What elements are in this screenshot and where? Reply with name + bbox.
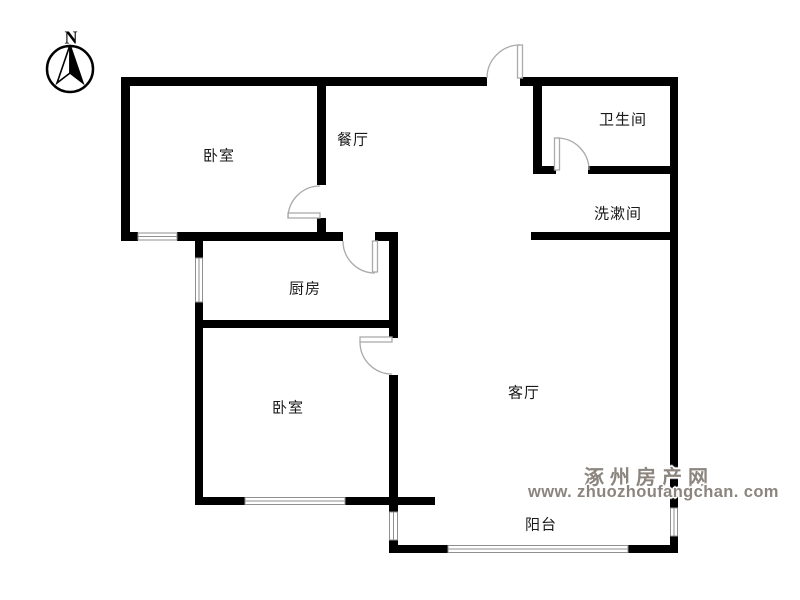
wall-center-lower: [389, 375, 398, 512]
compass-needle-west: [57, 45, 70, 83]
wall-bedroom-south-bottom-b: [345, 497, 435, 505]
room-label-dining: 餐厅: [337, 129, 369, 150]
door-arc-bathroom: [557, 138, 589, 170]
wall-divider-bedroom-dining-upper: [317, 77, 326, 185]
wall-bedroom-north-bottom-b: [177, 232, 343, 241]
wall-east: [670, 77, 678, 508]
wall-center-upper: [389, 232, 398, 338]
wall-bathroom-west: [533, 86, 542, 174]
door-bedroom-south: [360, 337, 392, 374]
wall-bedroom-north-bottom-a: [121, 232, 138, 241]
room-label-washroom: 洗漱间: [594, 203, 642, 224]
wall-bathroom-bottom-a: [533, 166, 556, 174]
door-bedroom-north: [288, 186, 320, 218]
room-label-bedroom-north: 卧室: [203, 145, 235, 166]
watermark-url: www. zhuozhoufangchan. com: [528, 483, 779, 502]
window-kitchen-west: [196, 258, 203, 302]
compass: [47, 45, 93, 92]
wall-top-west: [121, 77, 487, 86]
wall-balcony-bottom-a: [389, 545, 448, 553]
door-arc-bedroom-south: [360, 342, 392, 374]
window-balcony-east: [671, 508, 678, 536]
door-arc-entry: [487, 45, 520, 78]
door-bathroom: [555, 138, 590, 170]
room-label-bedroom-south: 卧室: [272, 397, 304, 418]
wall-washroom-bottom: [531, 232, 670, 240]
compass-north-label: N: [65, 28, 78, 49]
wall-top-east: [520, 77, 678, 86]
wall-kitchen-bottom: [195, 320, 397, 328]
room-label-living: 客厅: [508, 382, 540, 403]
window-balcony-west: [390, 512, 398, 540]
wall-kitchen-west-upper: [195, 241, 203, 258]
window-bedroom-south-bottom: [245, 498, 345, 505]
wall-west-bedroom-north: [121, 77, 130, 241]
wall-west-bedroom-south: [195, 328, 203, 505]
door-entry: [487, 45, 523, 78]
wall-balcony-bottom-b: [628, 545, 678, 553]
wall-bedroom-south-bottom-a: [195, 497, 245, 505]
compass-needle-east: [70, 45, 83, 83]
wall-bathroom-bottom-b: [588, 166, 678, 174]
window-bedroom-north-bottom: [138, 233, 177, 240]
room-label-kitchen: 厨房: [289, 278, 321, 299]
floor-plan-page: N 卧室 餐厅 卫生间 洗漱间 厨房 卧室 客厅 阳台 涿州房产网 www. z…: [0, 0, 800, 600]
floor-plan-drawing: [0, 0, 800, 600]
room-label-bathroom: 卫生间: [599, 109, 647, 130]
room-label-balcony: 阳台: [525, 514, 557, 535]
door-arc-kitchen: [343, 241, 375, 273]
door-kitchen: [343, 241, 378, 273]
window-balcony-south: [448, 546, 628, 553]
